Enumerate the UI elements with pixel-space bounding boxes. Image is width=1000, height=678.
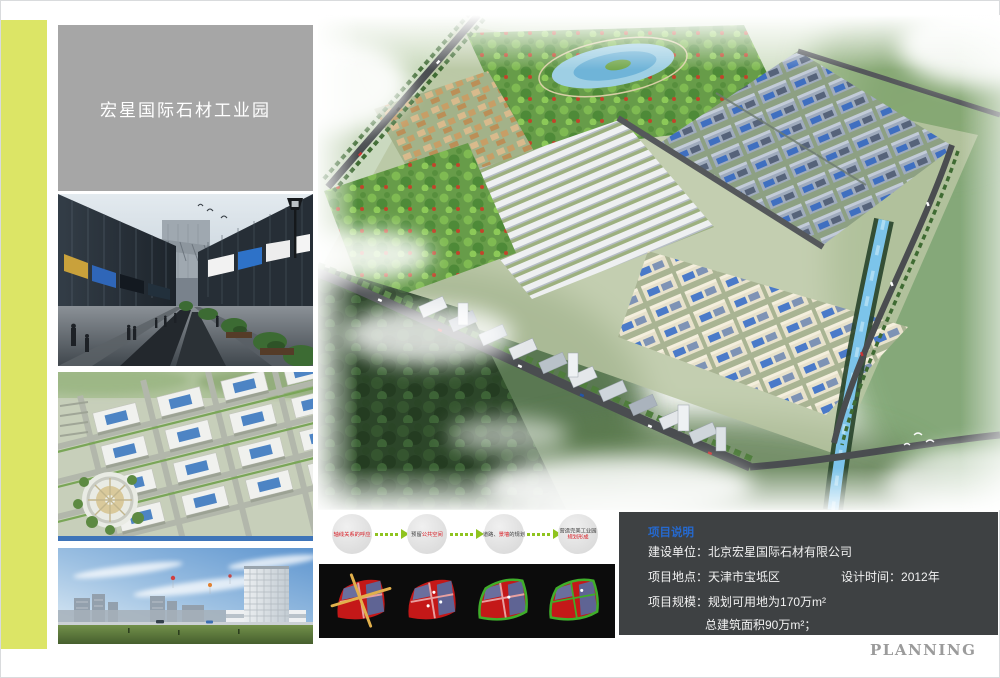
road-network-diagram — [543, 573, 605, 629]
flow-step-1-label: 轴线关系的呼应 — [334, 531, 371, 537]
industrial-park-aerial-rendering — [58, 372, 313, 541]
flow-step-1: 轴线关系的呼应 — [332, 514, 372, 554]
flow-arrow-2 — [450, 528, 484, 540]
commercial-street-rendering — [58, 194, 313, 366]
flow-step-4-label: 营造完美工业园规划形成 — [560, 528, 597, 540]
photo-skyline — [58, 548, 313, 644]
flow-step-4: 营造完美工业园规划形成 — [558, 514, 598, 554]
project-owner-row: 建设单位：北京宏星国际石材有限公司 — [648, 543, 852, 560]
flow-step-2: 预留公共空间 — [407, 514, 447, 554]
ring-road-diagram — [472, 573, 534, 629]
page-title: 宏星国际石材工业园 — [100, 96, 271, 121]
accent-stripe — [1, 20, 47, 649]
masterplan-panel — [318, 15, 1000, 510]
title-box: 宏星国际石材工业园 — [58, 25, 313, 191]
flow-step-3-label: 道路、景墙的规划 — [483, 531, 525, 537]
project-scale-row: 项目规模：规划可用地为170万m² — [648, 593, 826, 610]
planning-footer: PLANNING — [870, 641, 970, 659]
photo-industrial-park-aerial — [58, 372, 313, 541]
office-building-skyline-rendering — [58, 548, 313, 644]
concept-diagram-panel — [319, 564, 615, 638]
project-info-heading: 项目说明 — [648, 524, 694, 540]
project-location-row: 项目地点：天津市宝坻区 — [648, 568, 780, 585]
project-scale-row-2: 总建筑面积90万m²； — [705, 616, 816, 633]
flow-arrow-3 — [527, 528, 561, 540]
flow-step-3: 道路、景墙的规划 — [484, 514, 524, 554]
land-parcel-diagram — [401, 573, 463, 629]
presentation-board: 宏星国际石材工业园 — [0, 0, 1000, 678]
masterplan-aerial-rendering — [318, 15, 1000, 510]
flow-step-2-label: 预留公共空间 — [411, 531, 443, 537]
design-time-row: 设计时间：2012年 — [841, 568, 940, 585]
photo-commercial-street — [58, 194, 313, 366]
site-axes-diagram — [330, 573, 392, 629]
project-info-panel: 项目说明 建设单位：北京宏星国际石材有限公司 项目地点：天津市宝坻区 设计时间：… — [619, 512, 998, 635]
flow-arrow-1 — [375, 528, 409, 540]
